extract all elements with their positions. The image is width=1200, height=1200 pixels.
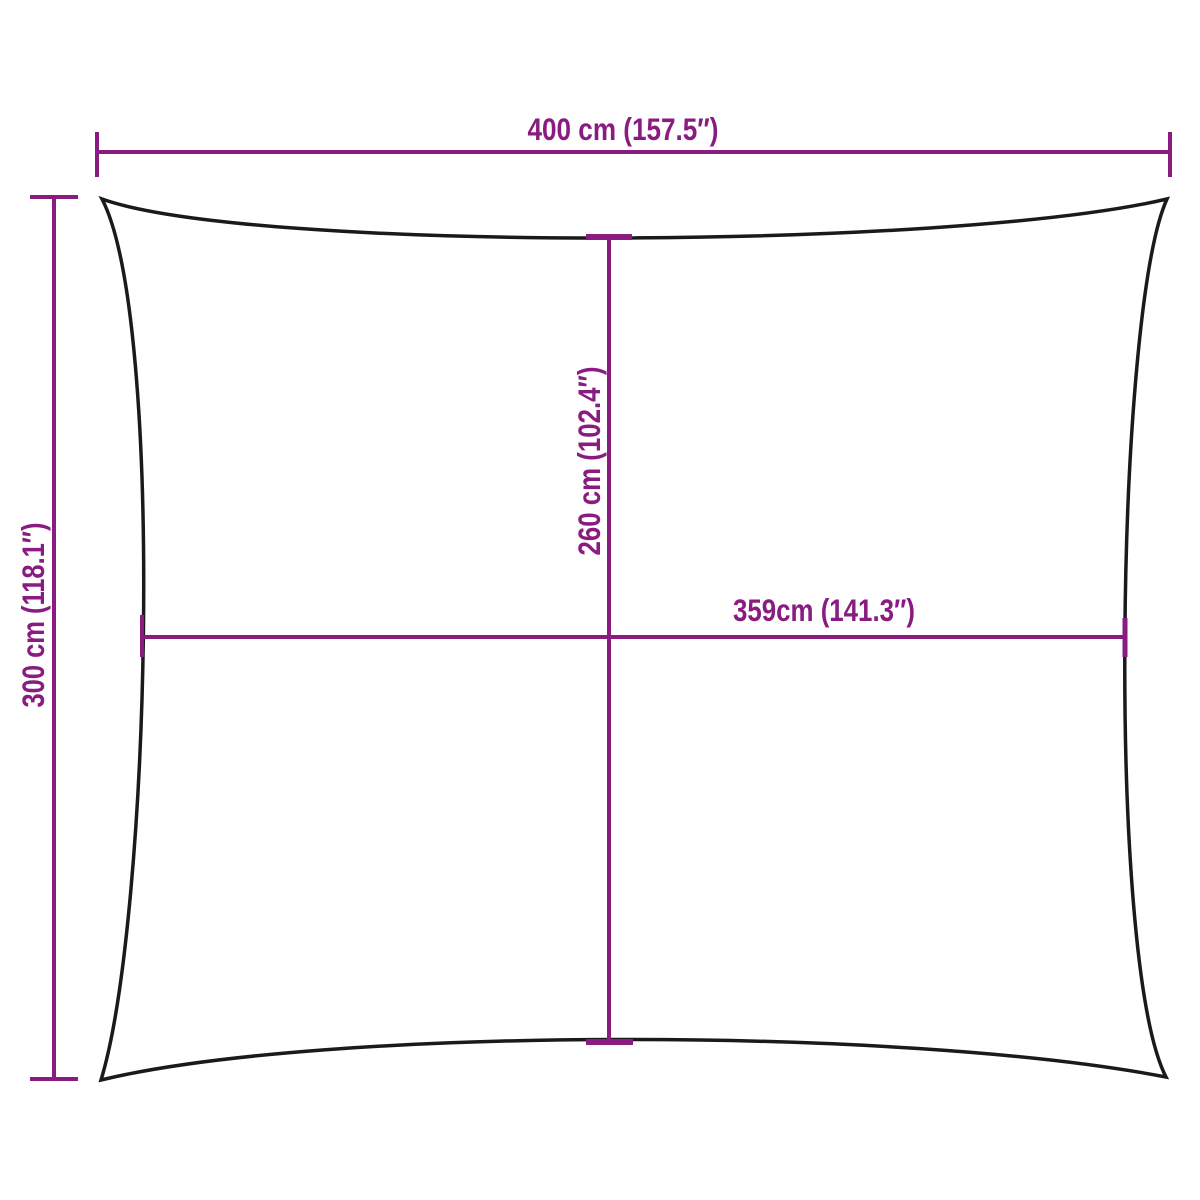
svg-text:400 cm (157.5″): 400 cm (157.5″): [528, 111, 719, 147]
svg-text:300 cm (118.1″): 300 cm (118.1″): [15, 523, 51, 708]
svg-text:260 cm (102.4″): 260 cm (102.4″): [571, 367, 607, 556]
svg-text:359cm (141.3″): 359cm (141.3″): [733, 592, 915, 628]
